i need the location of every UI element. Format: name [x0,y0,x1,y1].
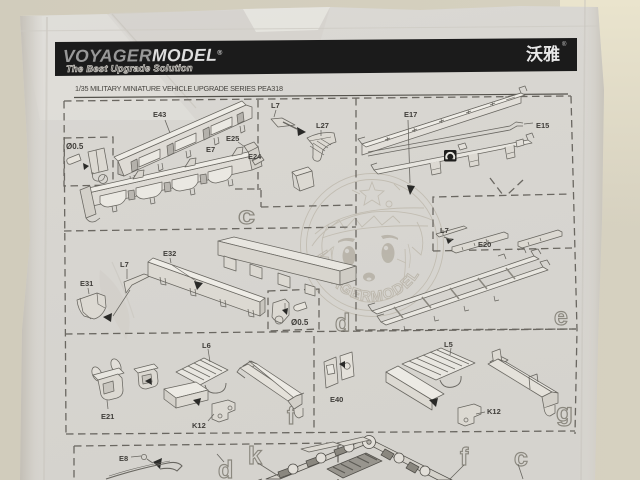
svg-text:c: c [514,444,528,472]
svg-text:e: e [554,303,568,331]
svg-text:®: ® [562,41,567,48]
svg-text:E31: E31 [80,279,93,288]
svg-text:E24: E24 [248,152,262,161]
svg-text:L7: L7 [440,226,449,235]
svg-text:E17: E17 [404,110,417,119]
svg-text:f: f [460,443,469,471]
svg-text:K12: K12 [487,407,501,416]
svg-text:L5: L5 [444,340,453,349]
svg-text:L6: L6 [202,341,211,350]
svg-text:沃雅: 沃雅 [526,44,560,64]
svg-text:L7: L7 [120,260,129,269]
svg-text:L7: L7 [271,101,280,110]
svg-text:E43: E43 [153,110,166,119]
svg-text:k: k [248,442,262,470]
svg-text:The Best Upgrade Solution: The Best Upgrade Solution [66,63,193,74]
svg-text:L27: L27 [316,121,329,130]
svg-text:K12: K12 [192,421,206,430]
svg-text:g: g [556,399,573,427]
svg-text:Ø0.5: Ø0.5 [291,318,309,327]
svg-text:E25: E25 [226,134,239,143]
svg-text:E32: E32 [163,249,176,258]
svg-text:E8: E8 [119,454,128,463]
svg-text:E20: E20 [478,240,491,249]
svg-text:c: c [238,202,255,230]
svg-text:E40: E40 [330,395,343,404]
svg-text:d: d [218,456,233,480]
svg-text:E7: E7 [206,145,215,154]
svg-text:d: d [335,309,350,337]
svg-text:Ø0.5: Ø0.5 [66,142,84,151]
svg-text:E15: E15 [536,121,549,130]
svg-text:1/35 MILITARY MINIATURE VEHICL: 1/35 MILITARY MINIATURE VEHICLE UPGRADE … [75,84,283,93]
svg-text:E21: E21 [101,412,114,421]
